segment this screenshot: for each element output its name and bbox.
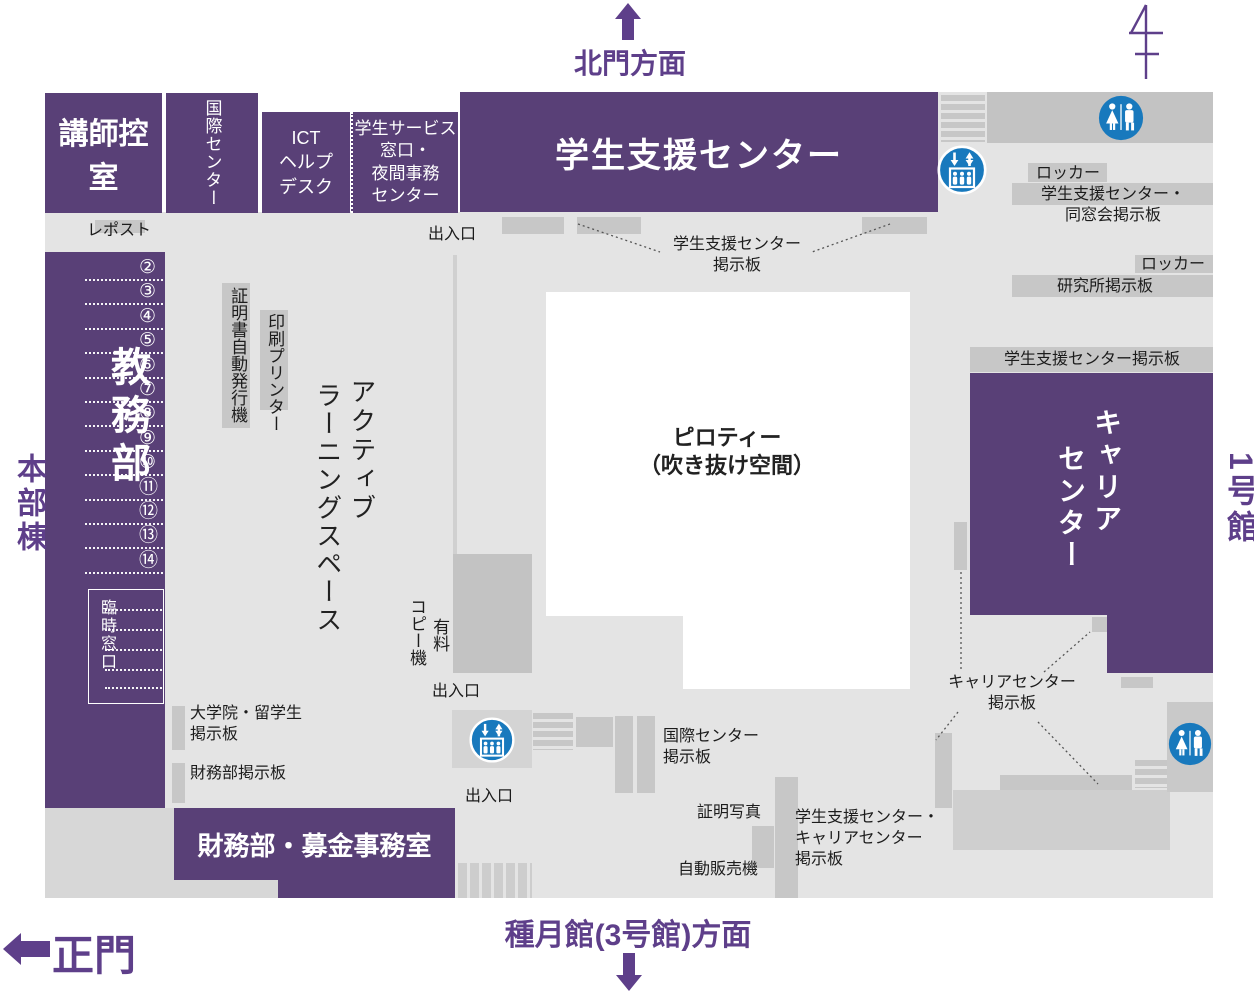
locker-label-2: ロッカー bbox=[1141, 255, 1205, 276]
locker-label-1: ロッカー bbox=[1036, 164, 1100, 185]
room-finance-office: 財務部・募金事務室 bbox=[174, 808, 455, 880]
window-divider bbox=[105, 609, 162, 611]
institute-board-label: 研究所掲示板 bbox=[1057, 277, 1153, 298]
window-number: ③ bbox=[139, 282, 156, 301]
window-divider bbox=[85, 547, 163, 549]
north-compass-icon bbox=[1129, 5, 1163, 79]
bulletin-bar bbox=[502, 217, 564, 234]
photo-label: 証明写真 bbox=[697, 803, 761, 824]
career-center-label-col1: キャリア bbox=[1086, 408, 1126, 536]
bulletin-bar bbox=[935, 733, 952, 808]
room-label-lines: 学生サービス 窓口・ 夜間事務 センター bbox=[355, 118, 457, 206]
paid-label: 有料 bbox=[428, 618, 450, 652]
window-divider bbox=[105, 649, 162, 651]
vending-label: 自動販売機 bbox=[678, 860, 758, 881]
bottom-left-strip2 bbox=[174, 880, 278, 898]
window-divider bbox=[85, 572, 163, 574]
room-label: 講師控室 bbox=[45, 109, 162, 197]
window-divider bbox=[85, 279, 163, 281]
stairs bbox=[941, 95, 985, 142]
bulletin-bar bbox=[172, 706, 185, 750]
window-divider bbox=[85, 303, 163, 305]
window-number: ⑧ bbox=[139, 404, 156, 423]
toilet-icon bbox=[1168, 722, 1212, 766]
intl-board-line2: 掲示板 bbox=[663, 749, 711, 766]
south-gate-label: 種月館(3号館)方面 bbox=[505, 910, 752, 954]
cert-machine-label: 証明書自動発行機 bbox=[226, 287, 248, 423]
bulletin-bar bbox=[172, 763, 185, 803]
block bbox=[576, 717, 613, 747]
bottom-left-strip bbox=[45, 808, 174, 898]
career-board-line1: キャリアセンター bbox=[948, 674, 1076, 691]
grad-board-line2: 掲示板 bbox=[190, 726, 238, 743]
window-number: ② bbox=[139, 258, 156, 277]
support-career-line3: 掲示板 bbox=[795, 851, 843, 868]
service-line3: 夜間事務 bbox=[372, 164, 440, 183]
intl-board-line1: 国際センター bbox=[663, 728, 759, 745]
room-label-lines: ICT ヘルプ デスク bbox=[279, 126, 333, 199]
grad-board-label: 大学院・留学生 掲示板 bbox=[190, 704, 302, 746]
room-label: 国際センター bbox=[200, 99, 225, 207]
career-board-line2: 掲示板 bbox=[988, 695, 1036, 712]
support-center-board-label: 学生支援センター掲示板 bbox=[1004, 350, 1180, 371]
temporary-window-box: 臨時窓口 bbox=[88, 589, 164, 704]
pilotis-line1: ピロティー bbox=[673, 424, 782, 453]
room-student-service: 学生サービス 窓口・ 夜間事務 センター bbox=[351, 112, 458, 213]
alumni-board-label: 学生支援センター・ 同窓会掲示板 bbox=[1041, 185, 1185, 227]
counter-block bbox=[953, 790, 1170, 850]
bulletin-bar bbox=[862, 217, 927, 234]
room-label: 財務部・募金事務室 bbox=[197, 826, 431, 863]
window-divider bbox=[85, 474, 163, 476]
service-line4: センター bbox=[372, 186, 440, 205]
main-gate-label: 正門 bbox=[52, 922, 136, 983]
ict-line3: デスク bbox=[279, 177, 333, 197]
right-building-label: 1号館 bbox=[1218, 452, 1254, 546]
career-board-label: キャリアセンター 掲示板 bbox=[948, 673, 1076, 715]
window-number: ⑫ bbox=[139, 502, 158, 521]
window-number: ⑥ bbox=[139, 356, 156, 375]
window-number: ⑦ bbox=[139, 380, 156, 399]
room-student-support-center: 学生支援センター bbox=[460, 92, 938, 212]
active-learning-col1: アクティブ bbox=[344, 378, 378, 523]
stairs bbox=[533, 713, 573, 750]
window-divider bbox=[85, 328, 163, 330]
room-international-center: 国際センター bbox=[166, 93, 258, 213]
career-center-label-col2: センター bbox=[1050, 444, 1090, 572]
grad-board-line1: 大学院・留学生 bbox=[190, 705, 302, 722]
window-number: ⑤ bbox=[139, 331, 156, 350]
window-divider bbox=[85, 377, 163, 379]
support-career-board-label: 学生支援センター・ キャリアセンター 掲示板 bbox=[795, 808, 939, 870]
stairs bbox=[1135, 760, 1167, 788]
room-lecturer-lounge: 講師控室 bbox=[45, 93, 162, 213]
printer-label: 印刷プリンター bbox=[263, 313, 285, 432]
window-divider bbox=[85, 401, 163, 403]
entrance-label-top: 出入口 bbox=[428, 225, 476, 246]
wall-line bbox=[453, 255, 457, 555]
window-divider bbox=[105, 687, 162, 689]
window-divider bbox=[105, 669, 162, 671]
elevator-icon bbox=[937, 145, 987, 195]
window-divider bbox=[85, 425, 163, 427]
ict-line1: ICT bbox=[292, 128, 321, 148]
window-number: ⑩ bbox=[139, 453, 156, 472]
support-board-line2: 掲示板 bbox=[713, 257, 761, 274]
support-board-line1: 学生支援センター bbox=[673, 236, 801, 253]
active-learning-col2: ラーニングスペース bbox=[310, 382, 344, 634]
entrance-label-bottom: 出入口 bbox=[465, 787, 513, 808]
ict-line2: ヘルプ bbox=[279, 152, 333, 172]
window-number: ④ bbox=[139, 307, 156, 326]
window-number: ⑨ bbox=[139, 429, 156, 448]
south-arrow-icon bbox=[616, 953, 642, 991]
support-career-line2: キャリアセンター bbox=[795, 830, 923, 847]
north-arrow-icon bbox=[615, 3, 641, 40]
window-divider bbox=[85, 352, 163, 354]
bulletin-bar bbox=[954, 522, 967, 570]
floor-map: 講師控室 国際センター ICT ヘルプ デスク 学生サービス 窓口・ 夜間事務 … bbox=[0, 0, 1254, 1000]
copier-block bbox=[453, 554, 532, 673]
window-divider bbox=[85, 499, 163, 501]
window-divider bbox=[105, 629, 162, 631]
support-career-line1: 学生支援センター・ bbox=[795, 809, 939, 826]
window-number: ⑬ bbox=[139, 526, 158, 545]
room-career-center-ext bbox=[1107, 615, 1213, 673]
bulletin-bar bbox=[1121, 677, 1153, 688]
north-gate-label: 北門方面 bbox=[574, 42, 686, 82]
window-number: ⑪ bbox=[139, 478, 158, 497]
window-divider bbox=[85, 523, 163, 525]
pilotis-void-lower bbox=[683, 616, 910, 689]
finance-board-label: 財務部掲示板 bbox=[190, 764, 286, 785]
service-line2: 窓口・ bbox=[380, 141, 431, 160]
entrance-label-mid: 出入口 bbox=[432, 682, 480, 703]
support-board-label: 学生支援センター 掲示板 bbox=[673, 235, 801, 277]
bulletin-bar bbox=[577, 217, 641, 234]
column bbox=[637, 716, 655, 793]
alumni-board-line2: 同窓会掲示板 bbox=[1065, 207, 1161, 224]
room-label: 学生支援センター bbox=[555, 128, 843, 177]
room-ict-helpdesk: ICT ヘルプ デスク bbox=[262, 112, 350, 213]
room-finance-office-ext bbox=[278, 880, 455, 898]
copier-label: コピー機 bbox=[405, 598, 427, 666]
service-line1: 学生サービス bbox=[355, 119, 457, 138]
pilotis-line2: （吹き抜け空間） bbox=[639, 452, 815, 481]
toilet-icon bbox=[1098, 95, 1144, 141]
alumni-board-line1: 学生支援センター・ bbox=[1041, 186, 1185, 203]
repost-label: レポスト bbox=[87, 221, 151, 242]
elevator-icon bbox=[469, 717, 515, 763]
left-building-label: 本部棟 bbox=[6, 453, 50, 555]
west-arrow-icon bbox=[3, 933, 50, 965]
stairs bbox=[458, 863, 532, 898]
column bbox=[615, 716, 633, 793]
intl-board-label: 国際センター 掲示板 bbox=[663, 727, 759, 769]
bulletin-bar bbox=[1092, 617, 1107, 632]
window-number: ⑭ bbox=[139, 551, 158, 570]
window-divider bbox=[85, 450, 163, 452]
